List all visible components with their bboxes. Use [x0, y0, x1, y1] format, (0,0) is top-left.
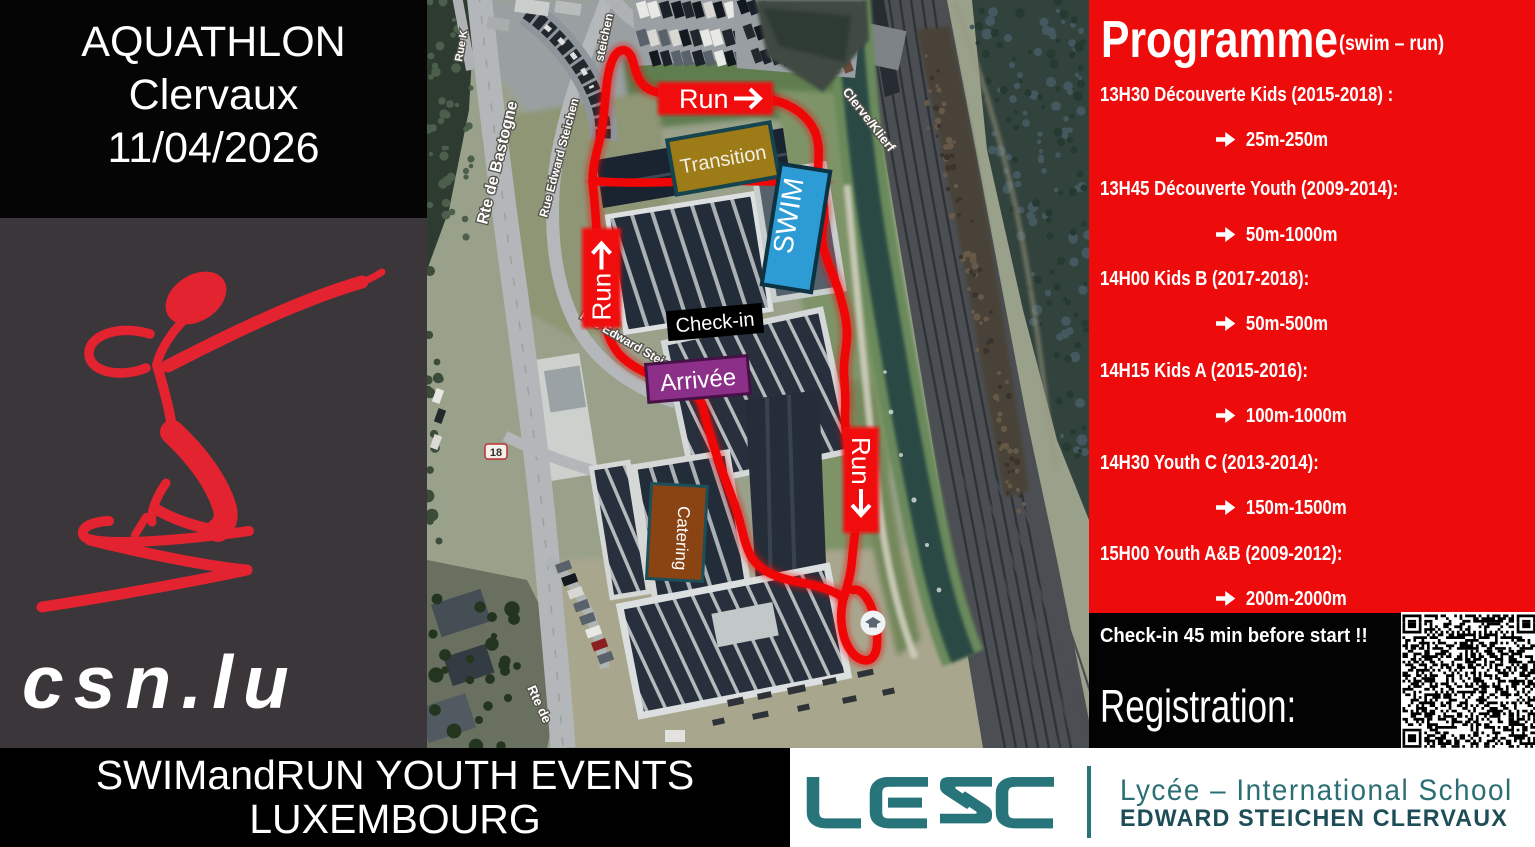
svg-text:Catering: Catering [671, 506, 693, 571]
svg-text:Run: Run [587, 273, 617, 321]
svg-text:18: 18 [490, 447, 502, 459]
svg-text:Run: Run [679, 84, 729, 114]
svg-text:Run: Run [846, 437, 876, 485]
